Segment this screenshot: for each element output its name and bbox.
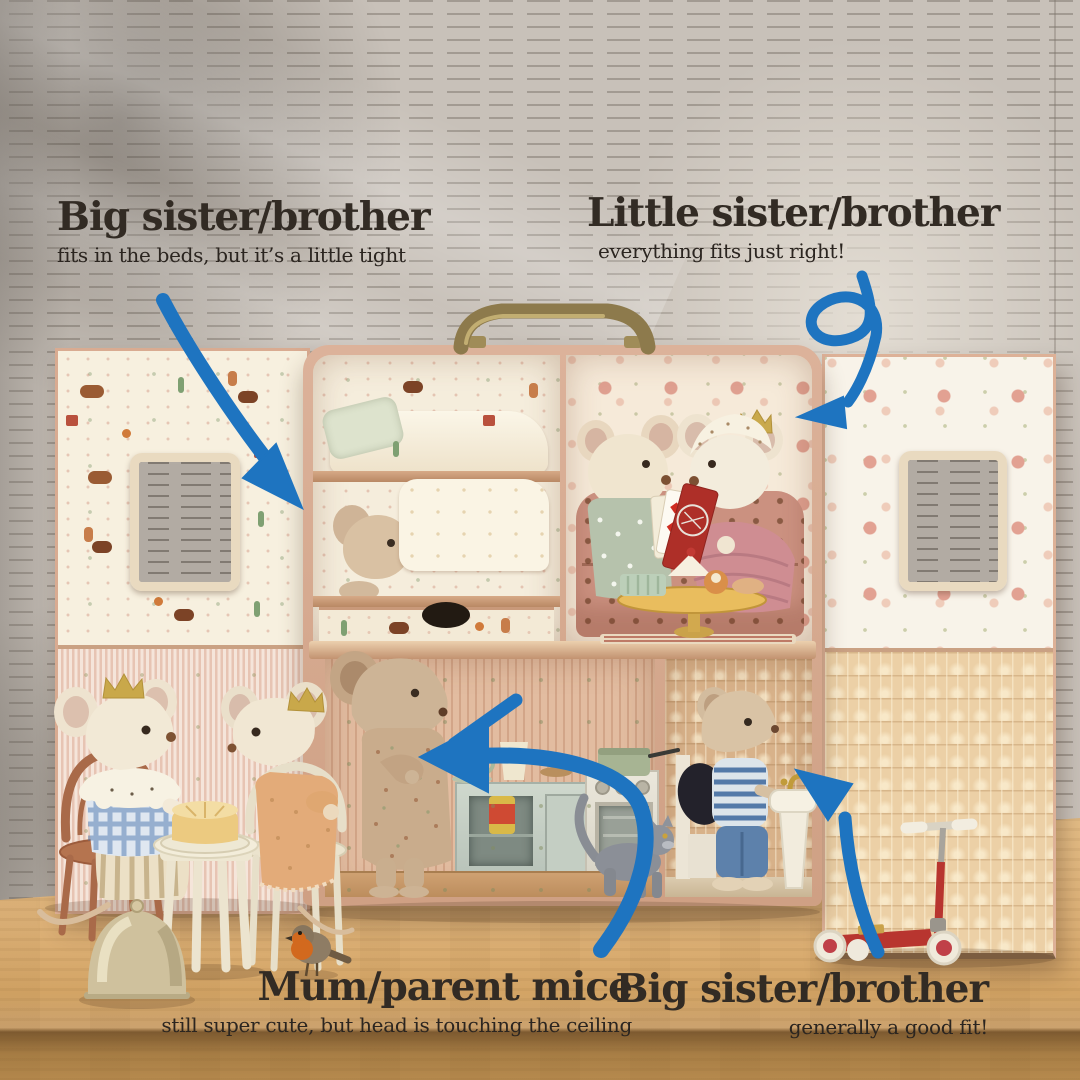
floor-divider [309,641,816,659]
striped-wallpaper [58,645,307,911]
motif [238,391,258,403]
annotation-bottom-right: Big sister/brother generally a good fit! [600,970,988,1039]
photo-scene: Big sister/brother fits in the beds, but… [0,0,1080,1080]
kitchen-cabinet [455,782,599,884]
motif [80,385,104,398]
motif [254,447,266,458]
stove-knob [595,780,610,795]
motif [389,622,409,634]
sofa [576,491,804,637]
annotation-bottom-center: Mum/parent mice still super cute, but he… [150,968,632,1037]
left-door-window [130,453,240,591]
motif [174,609,194,621]
right-door-window [899,451,1007,591]
motif [529,383,538,398]
bathroom-floor [665,877,812,897]
annotation-subtitle: fits in the beds, but it’s a little tigh… [57,243,430,267]
cowboy-drawer [319,607,554,642]
annotation-top-right: Little sister/brother everything fits ju… [587,194,999,263]
suitcase-house [303,345,822,906]
motif [403,381,423,393]
sleeping-mouse-eye [387,539,395,547]
annotation-subtitle: everything fits just right! [587,239,999,263]
motif [393,441,399,457]
fan-wallpaper [825,648,1053,953]
bathroom [665,659,812,897]
kitchen-floor [325,871,655,897]
annotation-subtitle: still super cute, but head is touching t… [150,1013,632,1037]
tomato-can [489,796,515,834]
annotation-top-left: Big sister/brother fits in the beds, but… [57,198,430,267]
right-door-panel [822,354,1056,959]
motif [258,511,264,527]
stove [585,770,659,884]
motif [475,622,484,631]
motif [483,415,495,426]
oven-door [595,802,653,866]
motif [501,618,510,633]
cabinet-door [545,794,591,876]
motif [254,601,260,617]
annotation-title: Mum/parent mice [150,968,632,1007]
living-room [566,355,812,641]
stove-knob [615,780,630,795]
motif [341,620,347,636]
kitchen [325,659,655,897]
bedroom [313,355,560,641]
floral-wallpaper [825,357,1053,648]
motif [66,415,78,426]
annotation-subtitle: generally a good fit! [600,1015,988,1039]
motif [84,527,93,542]
annotation-title: Little sister/brother [587,194,999,233]
motif [178,377,184,393]
motif [88,471,112,484]
cabinet-shelf [469,796,533,866]
stove-knob [635,780,650,795]
motif [122,429,131,438]
annotation-title: Big sister/brother [57,198,430,237]
bottom-bunk-blanket [399,479,549,571]
left-door-panel [55,348,310,914]
cowboy-wallpaper [58,351,307,645]
motif [228,371,237,386]
annotation-title: Big sister/brother [600,970,988,1009]
drawer-hole [422,602,470,628]
motif [154,597,163,606]
motif [92,541,112,553]
